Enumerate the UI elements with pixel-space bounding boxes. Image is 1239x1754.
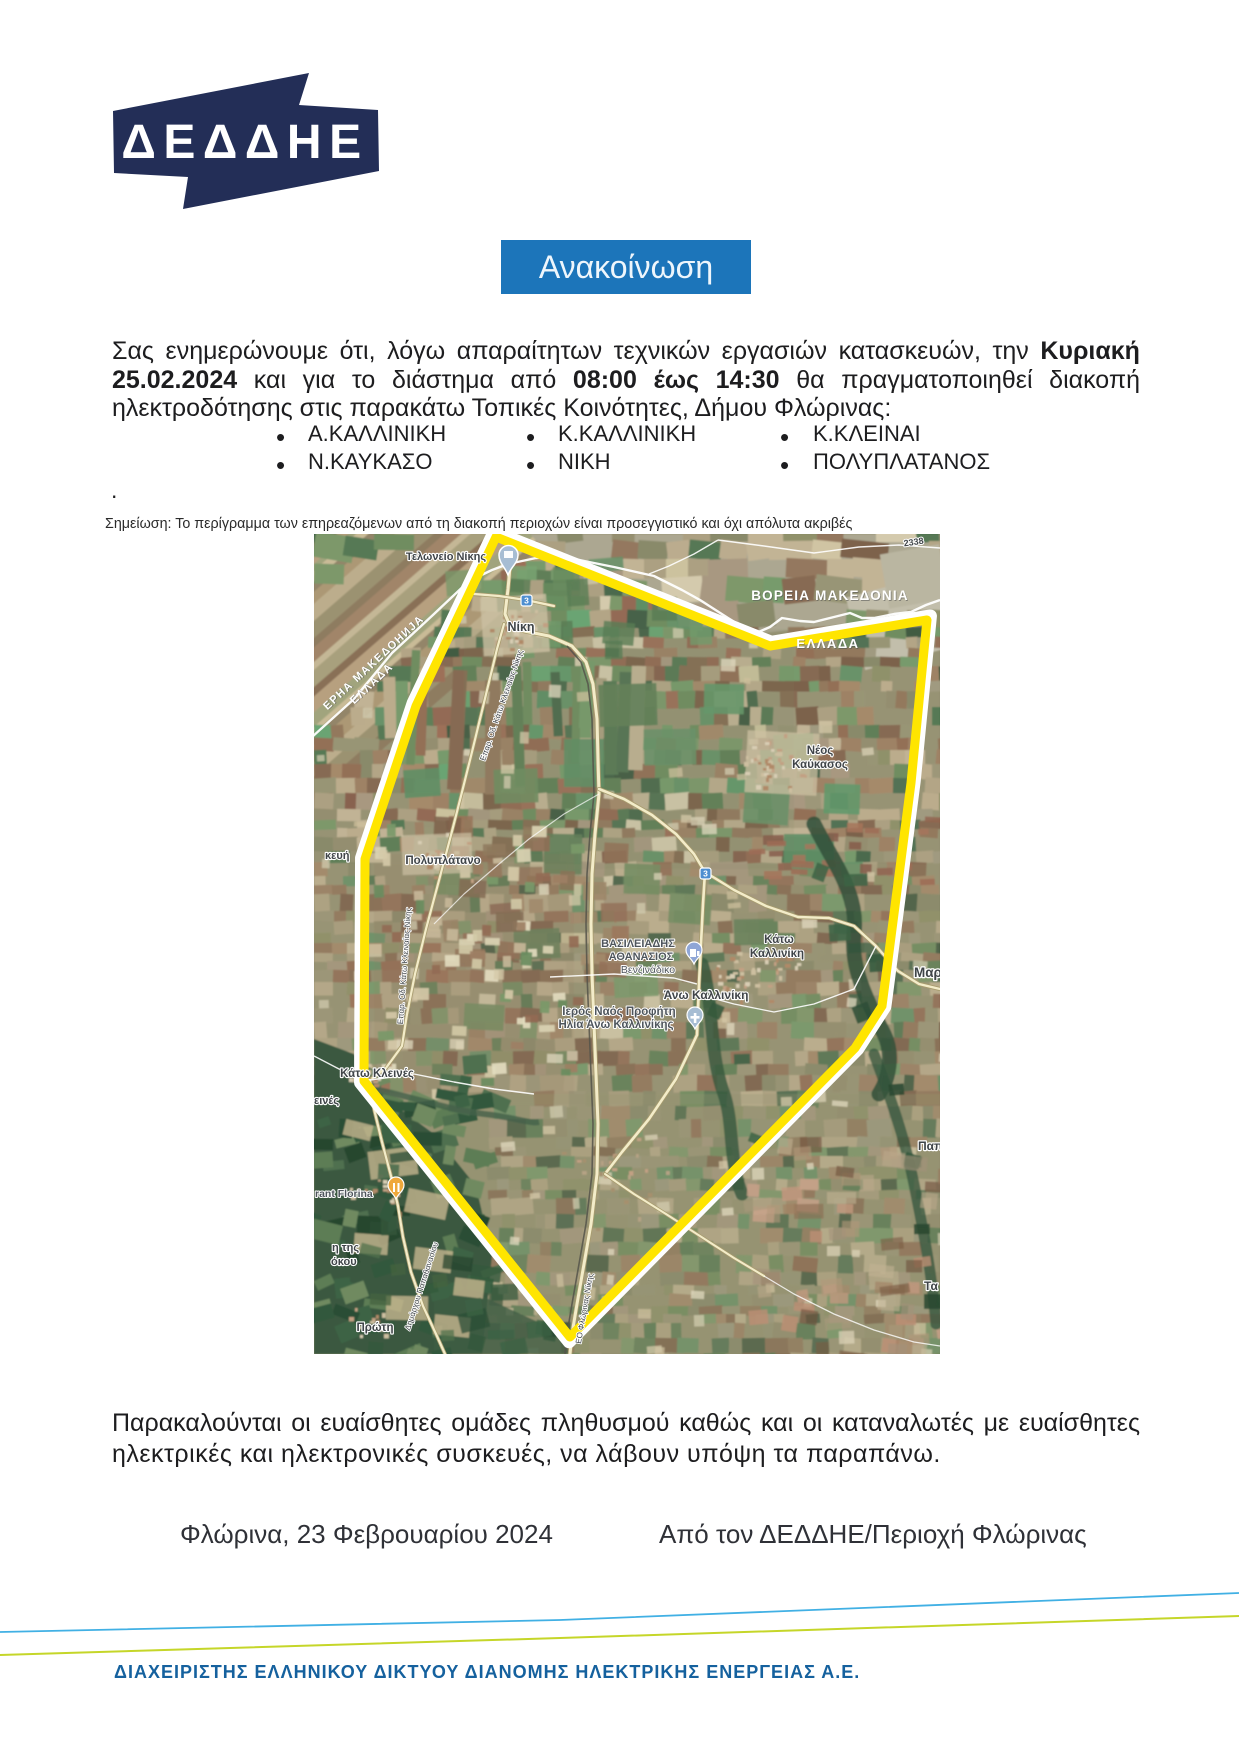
svg-text:Πολυπλάτανο: Πολυπλάτανο [405, 855, 480, 867]
svg-text:Ιερός Ναός Προφήτη: Ιερός Ναός Προφήτη [562, 1006, 675, 1018]
svg-text:όκου: όκου [331, 1256, 357, 1268]
svg-text:Τελωνείο Νίκης: Τελωνείο Νίκης [406, 551, 486, 563]
svg-text:3: 3 [703, 869, 708, 879]
svg-text:Μαρ: Μαρ [914, 965, 940, 980]
svg-text:Βενζινάδικο: Βενζινάδικο [621, 964, 675, 976]
svg-text:Καλλινίκη: Καλλινίκη [750, 948, 804, 960]
svg-text:ΔΕΔΔΗΕ: ΔΕΔΔΗΕ [121, 116, 368, 169]
svg-text:Νίκη: Νίκη [507, 620, 534, 634]
svg-text:Ηλία Άνω Καλλινίκης: Ηλία Άνω Καλλινίκης [558, 1019, 673, 1031]
svg-text:3: 3 [524, 596, 529, 606]
svg-text:Πρώτη: Πρώτη [357, 1322, 394, 1334]
svg-text:κευή: κευή [325, 850, 350, 862]
svg-text:ΒΟΡΕΙΑ ΜΑΚΕΔΟΝΙΑ: ΒΟΡΕΙΑ ΜΑΚΕΔΟΝΙΑ [751, 588, 909, 603]
svg-text:rant Florina: rant Florina [315, 1188, 373, 1200]
svg-text:Νέος: Νέος [807, 745, 834, 757]
svg-text:Καύκασος: Καύκασος [792, 759, 848, 771]
svg-text:ΑΘΑΝΑΣΙΟΣ: ΑΘΑΝΑΣΙΟΣ [609, 951, 674, 963]
svg-text:η της: η της [332, 1242, 359, 1254]
svg-text:Κάτω: Κάτω [764, 934, 794, 946]
svg-text:Παπ: Παπ [918, 1139, 940, 1153]
svg-text:Άνω Καλλινίκη: Άνω Καλλινίκη [664, 988, 749, 1002]
svg-text:Τα: Τα [924, 1279, 938, 1293]
svg-text:εινές: εινές [314, 1095, 339, 1107]
svg-text:ΒΑΣΙΛΕΙΑΔΗΣ: ΒΑΣΙΛΕΙΑΔΗΣ [601, 938, 675, 950]
svg-text:Κάτω Κλεινές: Κάτω Κλεινές [340, 1068, 414, 1080]
svg-text:ΕΛΛΑΔΑ: ΕΛΛΑΔΑ [796, 636, 859, 651]
